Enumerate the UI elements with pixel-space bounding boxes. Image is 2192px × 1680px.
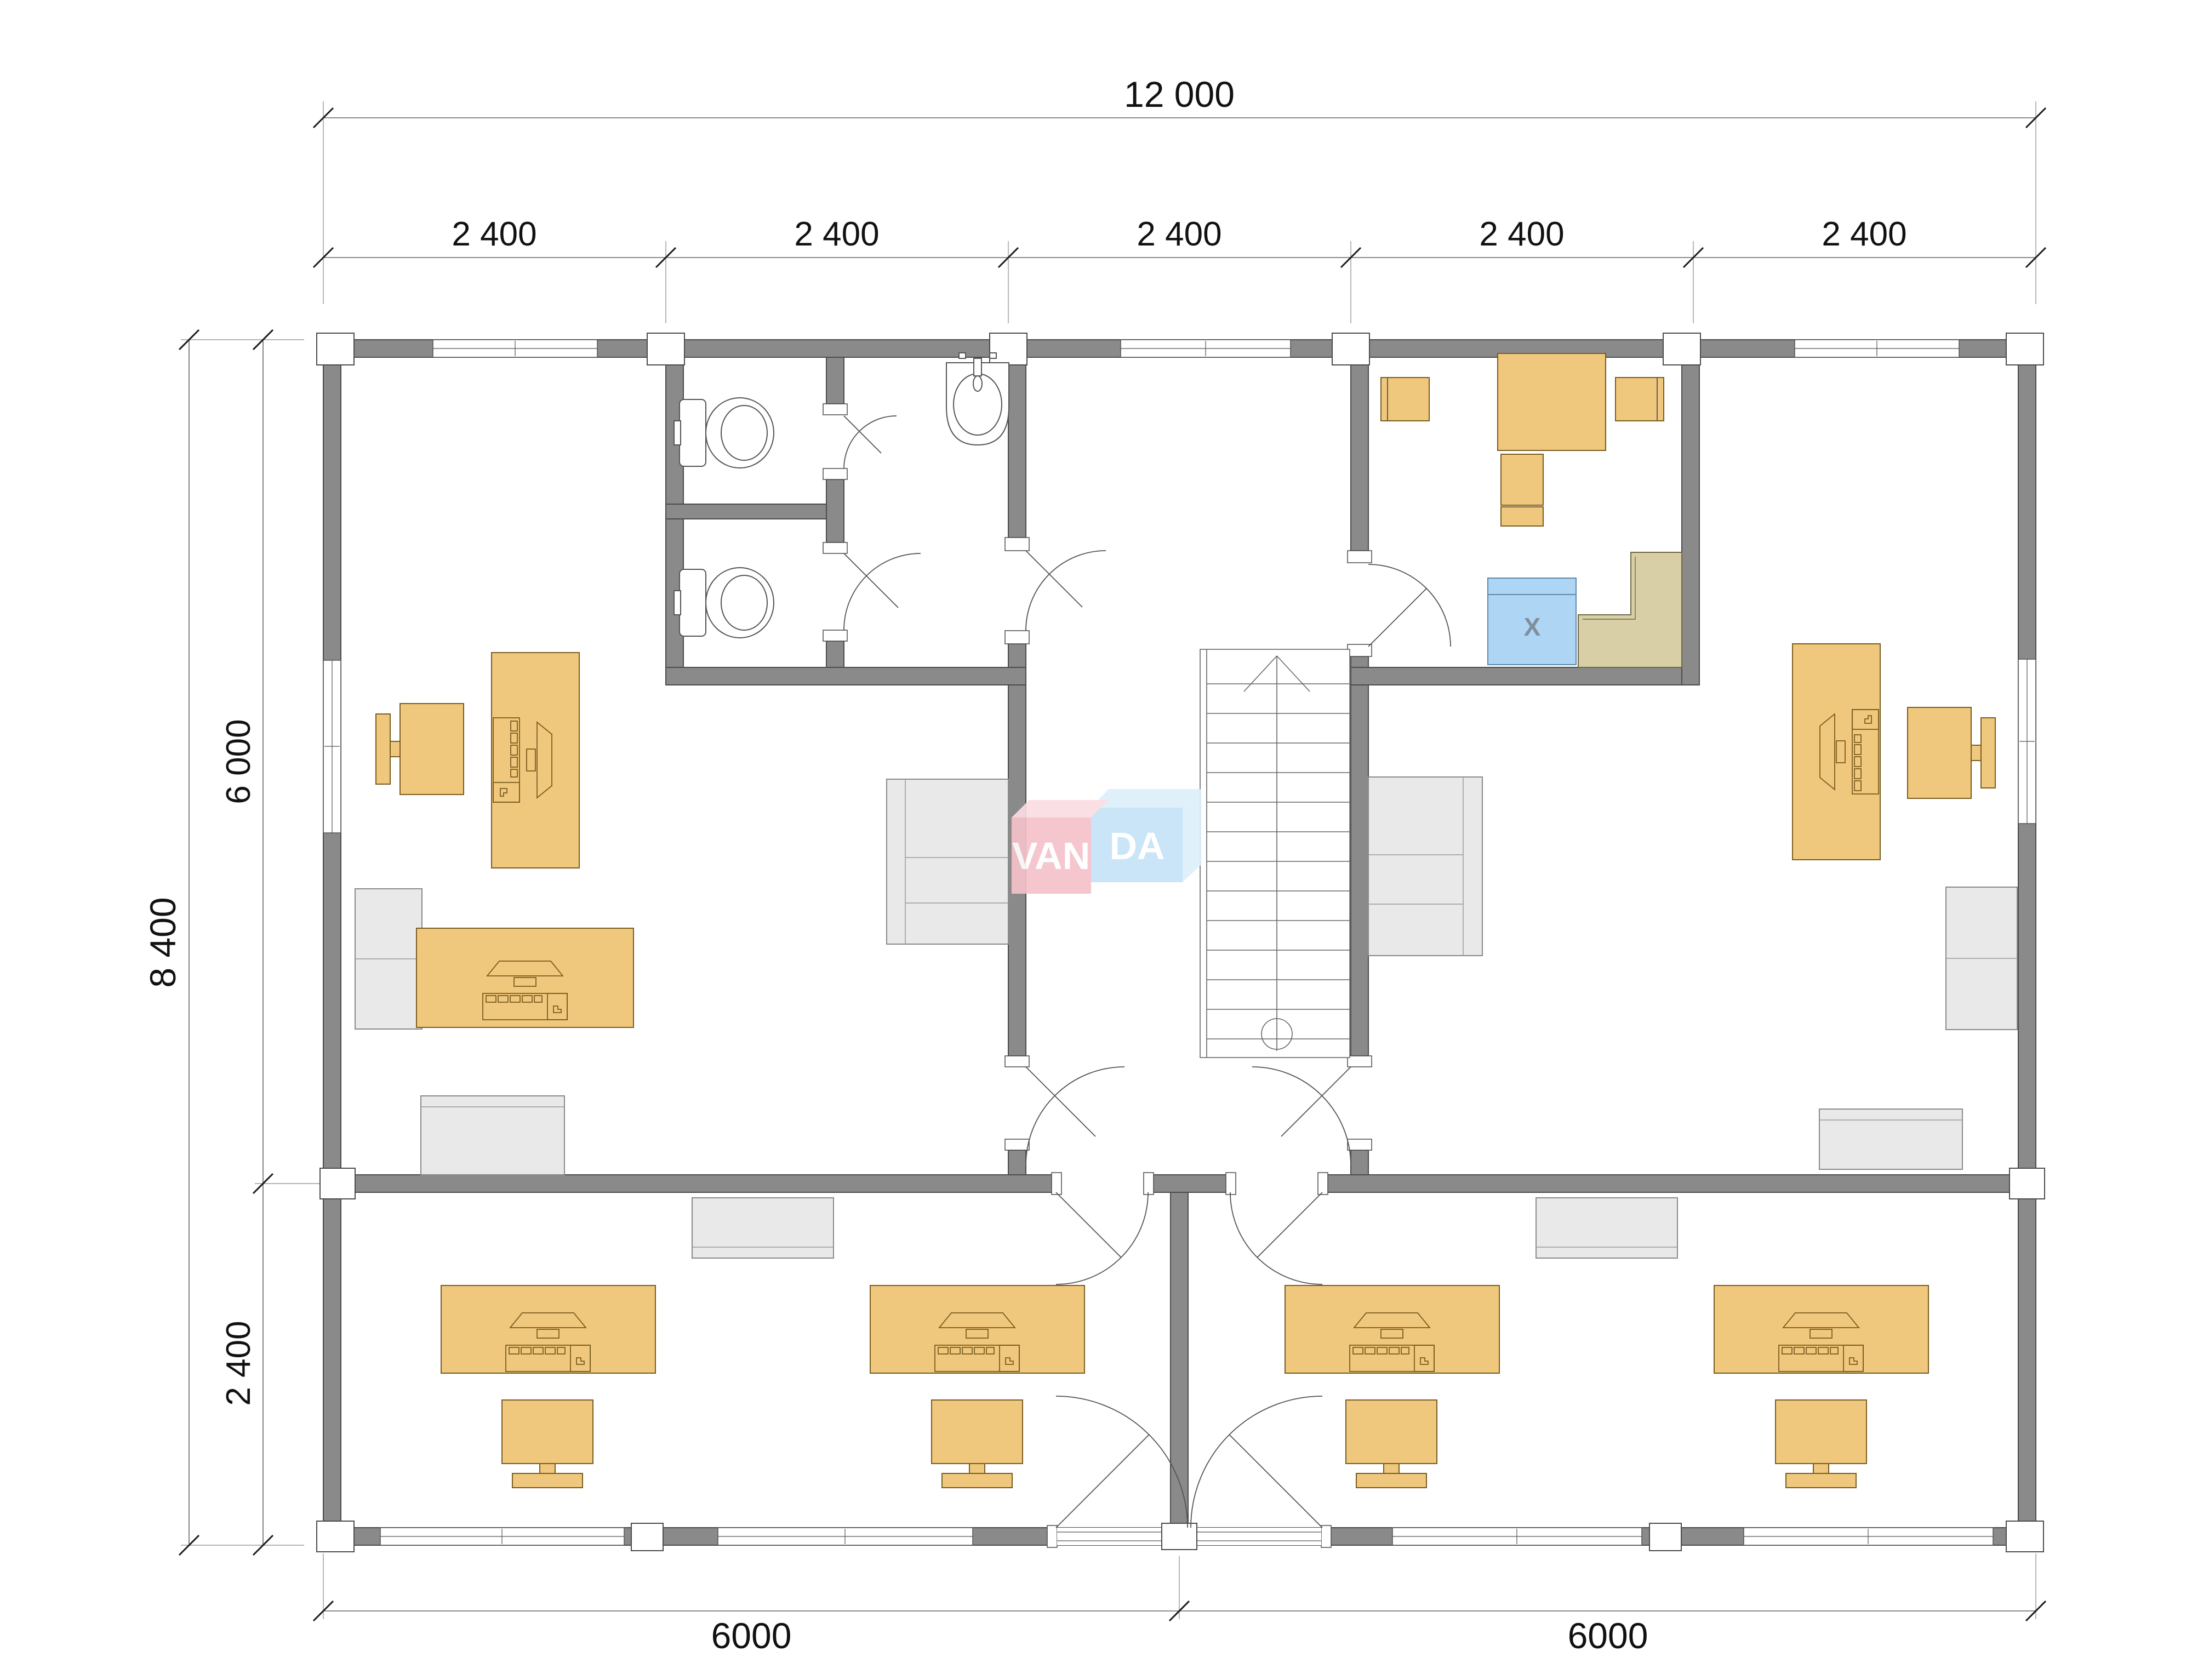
window-bottom-right-2 [1744,1528,1993,1545]
dim-label-bay-4: 2 400 [1479,215,1564,253]
door-bottom-left-room [1056,1192,1148,1284]
window-top-bay3 [1121,340,1291,357]
door-jamb [1348,1139,1372,1150]
door-right-office [1252,1067,1351,1165]
kitchen-south-wall [1351,667,1699,685]
cabinet [421,1096,564,1175]
logo-blue-cube-top [1091,789,1201,808]
office-chair [376,704,464,795]
hallway-south-wall-mid [1148,1175,1230,1192]
dim-label-bay-2: 2 400 [794,215,879,253]
window-top-bay5 [1795,340,1959,357]
vanda-logo: VAN DA [1012,789,1201,894]
window-right-wall [2018,659,2036,824]
window-top-bay1 [433,340,597,357]
cabinet [692,1198,834,1258]
door-jamb [823,468,847,479]
cabinet [1368,777,1482,956]
post [2006,1521,2043,1552]
door-jamb [823,630,847,641]
stair-east-wall-stub [1351,1150,1368,1175]
meeting-table [1498,353,1606,450]
office-chair [1776,1400,1866,1488]
logo-text-left: VAN [1012,835,1091,877]
door-jamb [1052,1173,1061,1195]
dim-label-lower-height: 2 400 [220,1321,258,1405]
kitchen-chair-left [1381,378,1429,421]
door-kitchen [1368,564,1451,647]
post [1663,333,1700,365]
post [631,1523,663,1551]
dim-label-upper-height: 6 000 [220,719,258,804]
wc-door-wall-stub-b [826,479,844,542]
staircase [1200,649,1350,1058]
door-jamb [1348,644,1372,656]
left-office-furniture [355,653,1008,1175]
right-office-furniture [1368,644,2017,1169]
kitchen-furniture: X [1381,353,1682,667]
window-left-wall [323,660,341,833]
dim-label-total-width: 12 000 [1124,74,1235,115]
wc-door-wall-stub-c [826,641,844,667]
post [1649,1523,1681,1551]
floor-plan-drawing: 12 000 2 400 2 400 2 400 2 400 2 400 8 4… [0,0,2192,1680]
door-entrance-right [1191,1396,1322,1528]
door-jamb [1144,1173,1154,1195]
toilet-1 [674,398,774,468]
sink [946,353,1009,445]
left-office-east-wall-stub [1008,1150,1026,1175]
logo-text-right: DA [1109,825,1164,867]
post [2010,1168,2045,1199]
door-jamb [1321,1525,1331,1547]
wc-door-wall-stub-a [826,357,844,404]
floor-plan-sheet: 12 000 2 400 2 400 2 400 2 400 2 400 8 4… [0,0,2192,1680]
kitchen-east-wall [1682,357,1699,685]
window-bottom-left-1 [380,1528,624,1545]
door-jamb [1005,538,1029,551]
post [990,333,1027,365]
door-jamb [1005,631,1029,644]
dim-label-total-height: 8 400 [142,897,183,987]
door-jamb [1226,1173,1236,1195]
office-chair [932,1400,1023,1488]
wc-divider-wall [666,504,826,519]
office-chair [1346,1400,1437,1488]
cabinet [887,779,1008,944]
exterior-wall-right [2018,340,2036,1545]
dim-label-bay-1: 2 400 [452,215,536,253]
cabinet [1819,1109,1962,1169]
door-bottom-right-room [1230,1192,1322,1284]
door-wc-1 [844,416,897,468]
bottom-left-room-furniture [441,1198,1084,1488]
post [320,1168,355,1199]
dishwasher-mark: X [1524,613,1541,641]
post [317,1521,354,1552]
post [2006,333,2043,365]
door-left-office [1026,1067,1124,1165]
bottom-right-room-furniture [1285,1198,1928,1488]
kitchen-counter [1578,552,1682,667]
bottom-rooms-divider-wall [1171,1192,1188,1528]
window-bottom-right-1 [1392,1528,1642,1545]
entrance-centre-post [1162,1523,1197,1550]
dim-label-bay-5: 2 400 [1822,215,1906,253]
post [317,333,354,365]
toilet-2 [674,568,774,638]
post [1332,333,1369,365]
door-jamb [823,404,847,415]
stair-outline [1200,649,1350,1058]
door-jamb [1318,1173,1328,1195]
door-jamb [823,542,847,553]
post [647,333,684,365]
exterior-wall-left [323,340,341,1545]
cabinet [1946,887,2017,1030]
window-bottom-left-2 [718,1528,973,1545]
washroom-east-wall-upper [1008,357,1026,538]
office-chair [502,1400,593,1488]
hallway-south-wall-left [323,1175,1056,1192]
dim-label-bottom-right: 6000 [1568,1615,1648,1656]
door-washroom [1026,551,1106,631]
door-wc-2 [844,553,921,630]
door-jamb [1348,551,1372,563]
kitchen-west-wall-upper [1351,357,1368,551]
dim-label-bay-3: 2 400 [1137,215,1221,253]
door-jamb [1005,1056,1029,1067]
door-jamb [1348,1056,1372,1067]
dim-label-bottom-left: 6000 [711,1615,792,1656]
door-jamb [1047,1525,1057,1547]
washroom-east-wall-lower [1008,644,1026,667]
office-chair [1908,707,1995,798]
stair-east-wall [1351,685,1368,1056]
kitchen-chair-bottom [1501,454,1543,526]
kitchen-chair-right [1616,378,1664,421]
wc-block-south-wall [666,667,1026,685]
door-jamb [1005,1139,1029,1150]
cabinet [1536,1198,1677,1258]
door-entrance-left [1056,1396,1188,1528]
cabinet [355,889,422,1029]
hallway-south-wall-right [1322,1175,2018,1192]
